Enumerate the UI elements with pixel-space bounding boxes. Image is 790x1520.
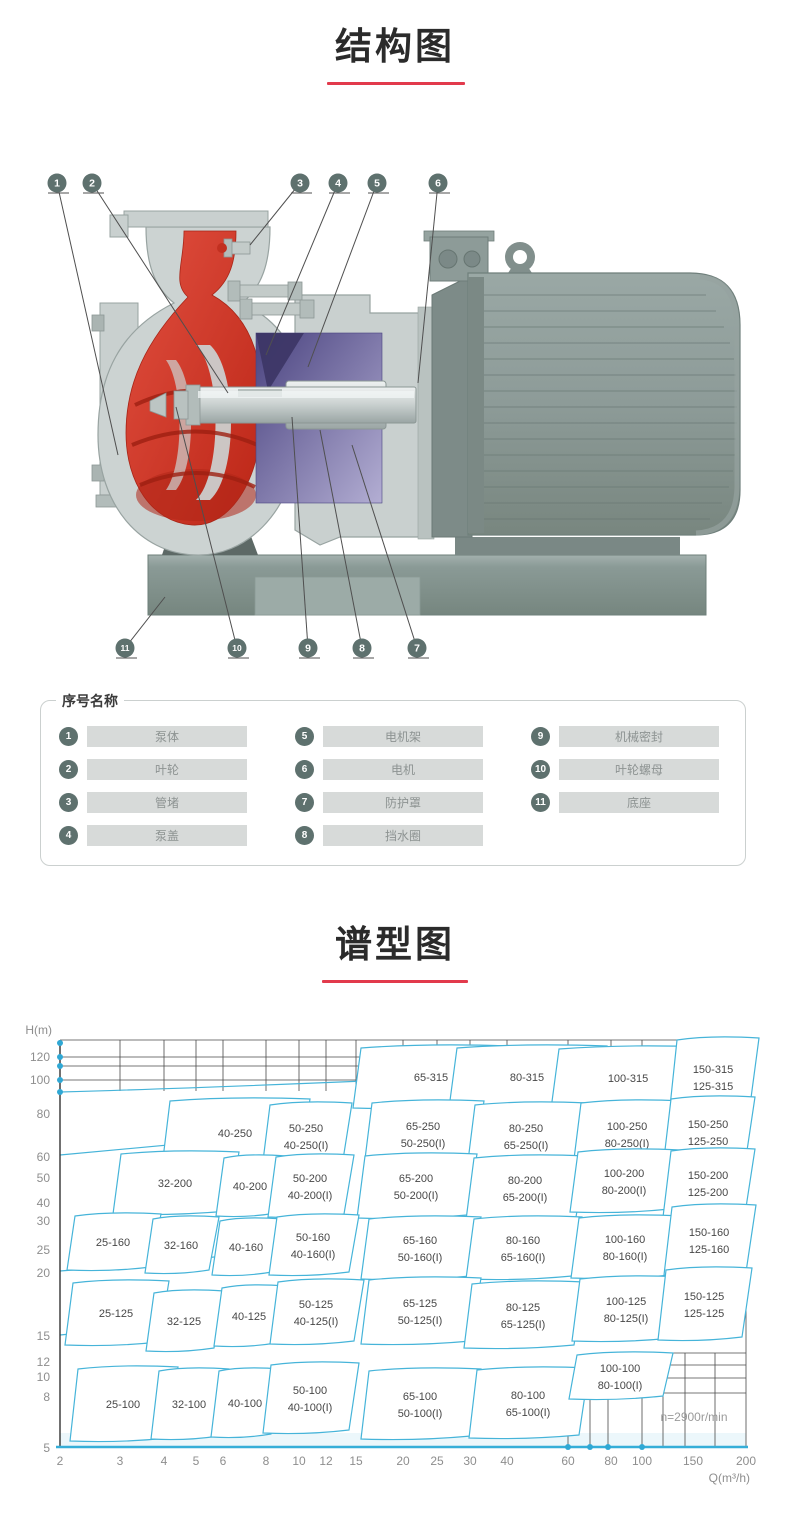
svg-text:5: 5: [374, 178, 380, 190]
pump-selection-chart: 65-31580-315100-315150-315125-31540-2505…: [0, 1015, 790, 1520]
x-tick-label: 3: [117, 1454, 124, 1468]
x-tick-label: 150: [683, 1454, 703, 1468]
pump-structure-diagram: 1234567891011: [0, 145, 790, 660]
region-label: 150-160: [689, 1227, 729, 1239]
svg-text:4: 4: [335, 178, 341, 190]
part-item: 2叶轮: [59, 758, 247, 780]
region-label: 125-250: [688, 1136, 728, 1148]
callout-9: 9: [299, 639, 318, 658]
callout-4: 4: [329, 174, 348, 193]
x-tick-label: 25: [430, 1454, 444, 1468]
part-item: 11底座: [531, 791, 719, 813]
region-label: 50-125: [299, 1299, 333, 1311]
spectrum-section-title: 谱型图: [0, 914, 790, 968]
y-axis-label: H(m): [25, 1023, 52, 1037]
x-tick-label: 60: [561, 1454, 575, 1468]
x-tick-label: 200: [736, 1454, 756, 1468]
part-item: 3管堵: [59, 791, 247, 813]
part-label: 管堵: [87, 792, 247, 813]
svg-text:9: 9: [305, 643, 311, 655]
callout-7: 7: [408, 639, 427, 658]
region-label: 80-250(I): [605, 1138, 650, 1150]
pump-model-region: 150-125125-125: [658, 1267, 752, 1341]
part-label: 泵体: [87, 726, 247, 747]
region-label: 80-125(I): [604, 1313, 649, 1325]
region-label: 40-200: [233, 1181, 267, 1193]
x-tick-label: 100: [632, 1454, 652, 1468]
structure-title-underline: [327, 82, 465, 85]
region-label: 50-125(I): [398, 1315, 443, 1327]
part-label: 挡水圈: [323, 825, 483, 846]
region-label: 125-315: [693, 1081, 733, 1093]
region-label: 32-125: [167, 1316, 201, 1328]
svg-text:10: 10: [232, 643, 242, 653]
svg-text:8: 8: [359, 643, 365, 655]
part-item: 6电机: [295, 758, 483, 780]
region-label: 150-200: [688, 1170, 728, 1182]
region-label: 65-200(I): [503, 1192, 548, 1204]
region-label: 40-100: [228, 1398, 262, 1410]
part-item: 10叶轮螺母: [531, 758, 719, 780]
region-label: 100-160: [605, 1234, 645, 1246]
y-tick-label: 15: [37, 1329, 51, 1343]
pump-model-region: 32-125: [146, 1290, 224, 1352]
part-number-badge: 7: [295, 793, 314, 812]
part-item: 8挡水圈: [295, 824, 483, 846]
part-number-badge: 11: [531, 793, 550, 812]
region-label: 65-125(I): [501, 1319, 546, 1331]
part-item: 5电机架: [295, 725, 483, 747]
x-tick-label: 12: [319, 1454, 333, 1468]
y-tick-label: 20: [37, 1266, 51, 1280]
x-tick-label: 5: [193, 1454, 200, 1468]
y-tick-label: 12: [37, 1355, 51, 1369]
speed-note: n=2900r/min: [660, 1410, 727, 1424]
parts-legend: 序号名称 1泵体2叶轮3管堵4泵盖5电机架6电机7防护罩8挡水圈9机械密封10叶…: [40, 700, 746, 866]
region-label: 40-125: [232, 1311, 266, 1323]
part-number-badge: 2: [59, 760, 78, 779]
x-axis-label: Q(m³/h): [709, 1471, 750, 1485]
region-label: 50-200: [293, 1173, 327, 1185]
region-label: 50-200(I): [394, 1190, 439, 1202]
parts-legend-title: 序号名称: [56, 691, 124, 711]
x-tick-label: 30: [463, 1454, 477, 1468]
region-label: 125-125: [684, 1308, 724, 1320]
callout-3: 3: [291, 174, 310, 193]
region-label: 100-125: [606, 1296, 646, 1308]
pump-model-region: 65-12550-125(I): [361, 1277, 481, 1345]
svg-text:3: 3: [297, 178, 303, 190]
motor: [424, 231, 740, 537]
x-tick-label: 2: [57, 1454, 64, 1468]
region-label: 25-100: [106, 1399, 140, 1411]
svg-text:7: 7: [414, 643, 420, 655]
parts-legend-column: 5电机架6电机7防护罩8挡水圈: [295, 725, 483, 857]
part-label: 底座: [559, 792, 719, 813]
x-tick-label: 10: [292, 1454, 306, 1468]
pump-model-region: 32-160: [145, 1216, 219, 1274]
region-label: 80-160: [506, 1235, 540, 1247]
region-label: 65-160(I): [501, 1252, 546, 1264]
part-item: 4泵盖: [59, 824, 247, 846]
x-tick-label: 15: [349, 1454, 363, 1468]
part-item: 9机械密封: [531, 725, 719, 747]
x-tick-label: 40: [500, 1454, 514, 1468]
pump-model-region: 50-16040-160(I): [269, 1214, 359, 1276]
region-label: 50-160(I): [398, 1252, 443, 1264]
region-label: 65-315: [414, 1072, 448, 1084]
svg-text:1: 1: [54, 178, 60, 190]
pump-model-region: 100-20080-200(I): [570, 1149, 680, 1213]
region-label: 50-100(I): [398, 1408, 443, 1420]
x-tick-label: 6: [220, 1454, 227, 1468]
y-tick-label: 8: [43, 1390, 50, 1404]
pump-model-region: 65-20050-200(I): [357, 1153, 477, 1219]
region-label: 150-250: [688, 1119, 728, 1131]
pump-model-region: 80-10065-100(I): [469, 1367, 589, 1439]
pump-model-region: 50-12540-125(I): [270, 1279, 364, 1345]
region-label: 65-200: [399, 1173, 433, 1185]
y-tick-label: 80: [37, 1107, 51, 1121]
pump-model-region: 50-20040-200(I): [268, 1154, 354, 1218]
part-item: 1泵体: [59, 725, 247, 747]
y-tick-label: 40: [37, 1196, 51, 1210]
callout-5: 5: [368, 174, 387, 193]
pump-model-region: 65-10050-100(I): [361, 1368, 481, 1440]
part-label: 叶轮: [87, 759, 247, 780]
parts-legend-column: 9机械密封10叶轮螺母11底座: [531, 725, 719, 857]
x-tick-label: 8: [263, 1454, 270, 1468]
region-label: 40-125(I): [294, 1316, 339, 1328]
region-label: 100-315: [608, 1073, 648, 1085]
part-number-badge: 3: [59, 793, 78, 812]
y-tick-label: 5: [43, 1441, 50, 1455]
pump-model-region: 65-16050-160(I): [361, 1216, 481, 1280]
y-tick-label: 25: [37, 1243, 51, 1257]
svg-text:2: 2: [89, 178, 95, 190]
region-label: 150-125: [684, 1291, 724, 1303]
region-label: 80-100: [511, 1390, 545, 1402]
callout-10: 10: [228, 639, 247, 658]
pump-model-region: 100-10080-100(I): [569, 1352, 673, 1400]
part-label: 泵盖: [87, 825, 247, 846]
region-label: 40-160(I): [291, 1249, 336, 1261]
region-label: 25-125: [99, 1308, 133, 1320]
pump-model-region: 50-10040-100(I): [263, 1362, 359, 1434]
y-tick-label: 100: [30, 1073, 50, 1087]
y-tick-label: 60: [37, 1150, 51, 1164]
region-label: 32-100: [172, 1399, 206, 1411]
region-label: 65-160: [403, 1235, 437, 1247]
part-label: 叶轮螺母: [559, 759, 719, 780]
region-label: 65-250(I): [504, 1140, 549, 1152]
region-label: 65-125: [403, 1298, 437, 1310]
region-label: 100-250: [607, 1121, 647, 1133]
part-label: 电机架: [323, 726, 483, 747]
callout-2: 2: [83, 174, 102, 193]
region-label: 40-160: [229, 1242, 263, 1254]
parts-legend-columns: 1泵体2叶轮3管堵4泵盖5电机架6电机7防护罩8挡水圈9机械密封10叶轮螺母11…: [41, 701, 745, 857]
callout-8: 8: [353, 639, 372, 658]
region-label: 50-160: [296, 1232, 330, 1244]
part-label: 电机: [323, 759, 483, 780]
part-label: 机械密封: [559, 726, 719, 747]
part-number-badge: 4: [59, 826, 78, 845]
region-label: 40-100(I): [288, 1402, 333, 1414]
svg-text:11: 11: [121, 643, 130, 653]
product-page: 结构图: [0, 0, 790, 1520]
region-label: 65-250: [406, 1121, 440, 1133]
part-number-badge: 6: [295, 760, 314, 779]
part-number-badge: 1: [59, 727, 78, 746]
part-number-badge: 10: [531, 760, 550, 779]
callout-6: 6: [429, 174, 448, 193]
region-label: 40-250: [218, 1128, 252, 1140]
spectrum-title-underline: [322, 980, 468, 983]
region-label: 100-200: [604, 1168, 644, 1180]
region-label: 32-200: [158, 1178, 192, 1190]
x-tick-label: 20: [396, 1454, 410, 1468]
parts-legend-column: 1泵体2叶轮3管堵4泵盖: [59, 725, 247, 857]
region-label: 32-160: [164, 1240, 198, 1252]
part-number-badge: 5: [295, 727, 314, 746]
region-label: 50-100: [293, 1385, 327, 1397]
region-label: 150-315: [693, 1064, 733, 1076]
x-tick-label: 4: [161, 1454, 168, 1468]
pump-model-region: 80-20065-200(I): [466, 1155, 586, 1221]
structure-section-title: 结构图: [0, 16, 790, 70]
y-tick-label: 30: [37, 1214, 51, 1228]
region-label: 125-160: [689, 1244, 729, 1256]
pump-model-region: 150-160125-160: [664, 1204, 756, 1276]
region-label: 80-250: [509, 1123, 543, 1135]
region-label: 80-125: [506, 1302, 540, 1314]
region-label: 80-160(I): [603, 1251, 648, 1263]
region-label: 40-200(I): [288, 1190, 333, 1202]
x-tick-label: 80: [604, 1454, 618, 1468]
pump-model-region: 80-12565-125(I): [464, 1281, 584, 1349]
region-label: 40-250(I): [284, 1140, 329, 1152]
part-label: 防护罩: [323, 792, 483, 813]
part-number-badge: 8: [295, 826, 314, 845]
pump-model-region: 80-16065-160(I): [466, 1216, 582, 1280]
region-label: 125-200: [688, 1187, 728, 1199]
region-label: 80-100(I): [598, 1380, 643, 1392]
y-tick-label: 50: [37, 1171, 51, 1185]
y-tick-label: 10: [37, 1370, 51, 1384]
region-label: 25-160: [96, 1237, 130, 1249]
casing-bolts: [228, 281, 314, 319]
part-number-badge: 9: [531, 727, 550, 746]
pump-shaft: [150, 381, 416, 429]
part-item: 7防护罩: [295, 791, 483, 813]
region-label: 80-200: [508, 1175, 542, 1187]
region-label: 100-100: [600, 1363, 640, 1375]
region-label: 50-250: [289, 1123, 323, 1135]
region-label: 65-100(I): [506, 1407, 551, 1419]
callout-1: 1: [48, 174, 67, 193]
motor-body: [468, 273, 740, 535]
y-tick-label: 120: [30, 1050, 50, 1064]
region-label: 80-315: [510, 1072, 544, 1084]
region-label: 80-200(I): [602, 1185, 647, 1197]
region-label: 65-100: [403, 1391, 437, 1403]
svg-text:6: 6: [435, 178, 441, 190]
callout-11: 11: [116, 639, 135, 658]
region-label: 50-250(I): [401, 1138, 446, 1150]
